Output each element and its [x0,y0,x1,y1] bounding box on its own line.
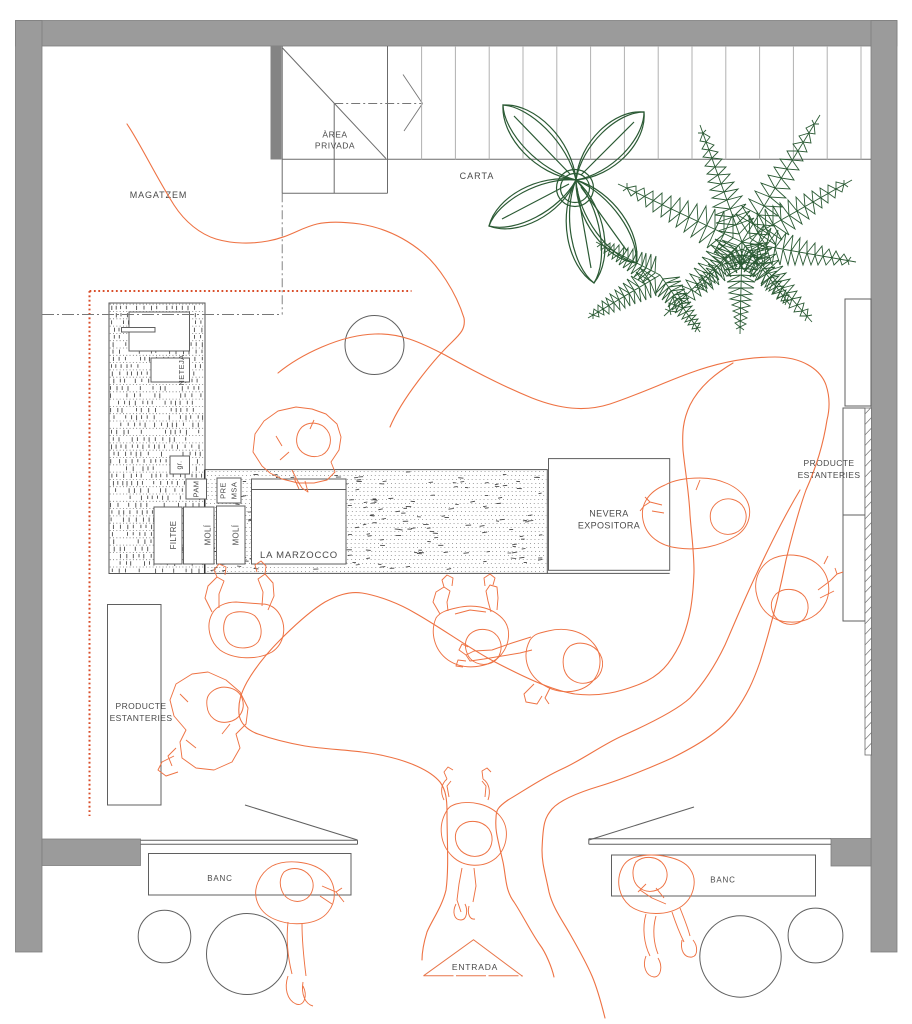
svg-text:FILTRE: FILTRE [169,521,178,550]
svg-text:BANC: BANC [710,876,735,885]
svg-text:PRODUCTE: PRODUCTE [116,701,167,711]
svg-text:NETEJA: NETEJA [177,354,186,385]
svg-text:ESTANTERIES: ESTANTERIES [110,713,173,723]
svg-text:ÀREA: ÀREA [322,130,347,140]
svg-text:MSA: MSA [230,482,239,499]
svg-text:BANC: BANC [207,874,232,883]
svg-text:LA MARZOCCO: LA MARZOCCO [260,550,338,561]
svg-text:NEVERA: NEVERA [589,509,628,519]
svg-text:gr.: gr. [177,461,184,470]
svg-text:PRIVADA: PRIVADA [315,141,355,151]
svg-text:EXPOSITORA: EXPOSITORA [578,521,640,531]
svg-text:ESTANTERIES: ESTANTERIES [798,470,861,480]
svg-text:PAM: PAM [192,481,201,498]
svg-text:PRE: PRE [219,482,228,499]
svg-text:PRODUCTE: PRODUCTE [804,458,855,468]
svg-text:MAGATZEM: MAGATZEM [130,190,188,200]
svg-text:ENTRADA: ENTRADA [452,962,498,972]
svg-text:CARTA: CARTA [460,171,495,181]
svg-text:MOLÍ: MOLÍ [204,524,213,545]
svg-text:MOLÍ: MOLÍ [232,524,241,545]
